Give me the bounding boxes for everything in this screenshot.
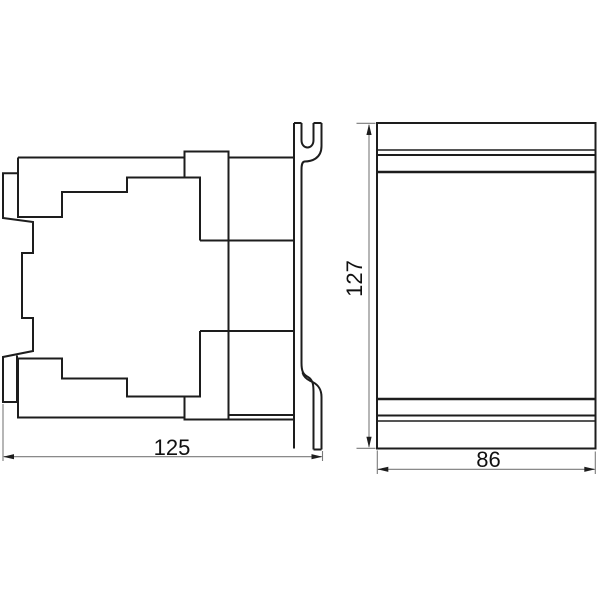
lower-step-profile bbox=[18, 331, 200, 418]
front-view-drawing bbox=[377, 123, 596, 449]
width-arrow-right bbox=[584, 467, 595, 472]
dimension-height-label: 127 bbox=[342, 260, 367, 297]
side-view-drawing bbox=[3, 152, 294, 420]
depth-arrow-right bbox=[312, 454, 323, 459]
block-bottom-edge bbox=[185, 397, 294, 420]
dimension-depth-label: 125 bbox=[154, 435, 191, 460]
drawing-canvas: 125 127 86 bbox=[0, 0, 600, 600]
dimension-height: 127 bbox=[342, 123, 376, 448]
dimension-depth: 125 bbox=[3, 404, 323, 461]
upper-step-profile bbox=[18, 158, 200, 241]
height-arrow-bottom bbox=[366, 437, 371, 448]
din-rail-profile bbox=[294, 123, 322, 450]
dimension-width-label: 86 bbox=[476, 447, 500, 472]
rail-top-hook-inner bbox=[302, 123, 314, 148]
dimension-width: 86 bbox=[377, 447, 595, 474]
mounting-block bbox=[185, 152, 229, 419]
width-arrow-left bbox=[377, 467, 388, 472]
technical-drawing: 125 127 86 bbox=[0, 0, 600, 600]
rail-web-and-hooks bbox=[302, 123, 322, 450]
height-arrow-top bbox=[366, 124, 371, 135]
depth-arrow-left bbox=[3, 454, 14, 459]
